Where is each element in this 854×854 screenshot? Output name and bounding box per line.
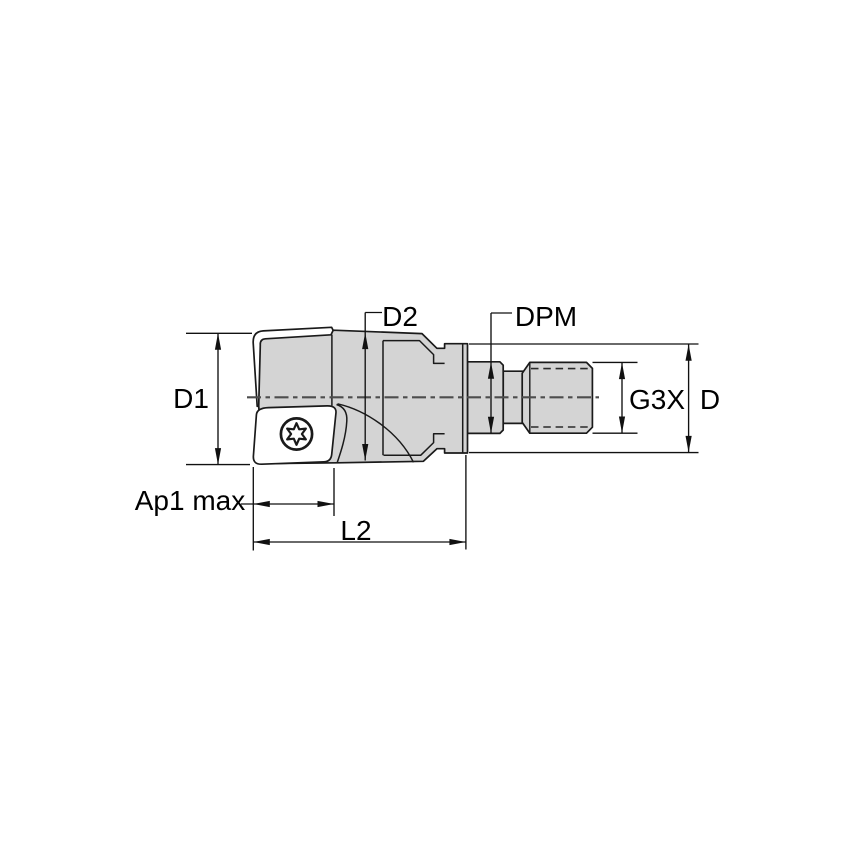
g3x-arrow-up [619,363,625,380]
milling-cutter-diagram: D1 D2 DPM G3X D [0,0,854,854]
g3x-arrow-down [619,417,625,434]
cutter-assembly [253,327,592,464]
label-d1: D1 [173,383,209,414]
ap1-arrow-right [318,501,335,507]
ap1-arrow-left [253,501,269,507]
d1-arrow-down [215,448,221,465]
d1-arrow-up [215,333,221,350]
technical-drawing-page: D1 D2 DPM G3X D [0,0,854,854]
label-d2: D2 [382,301,418,332]
d-arrow-up [686,344,692,361]
clamp-screw [281,418,312,449]
label-l2: L2 [340,515,371,546]
dimension-g3x: G3X [593,362,686,433]
dimension-ap1-max: Ap1 max [135,467,334,551]
label-ap1-max: Ap1 max [135,485,246,516]
label-dpm: DPM [515,301,577,332]
label-d: D [700,384,720,415]
dimension-d1: D1 [173,333,252,464]
label-g3x: G3X [629,384,685,415]
l2-arrow-right [449,539,466,545]
l2-arrow-left [253,539,269,545]
d-arrow-down [686,436,692,453]
dimension-l2: L2 [253,455,466,550]
